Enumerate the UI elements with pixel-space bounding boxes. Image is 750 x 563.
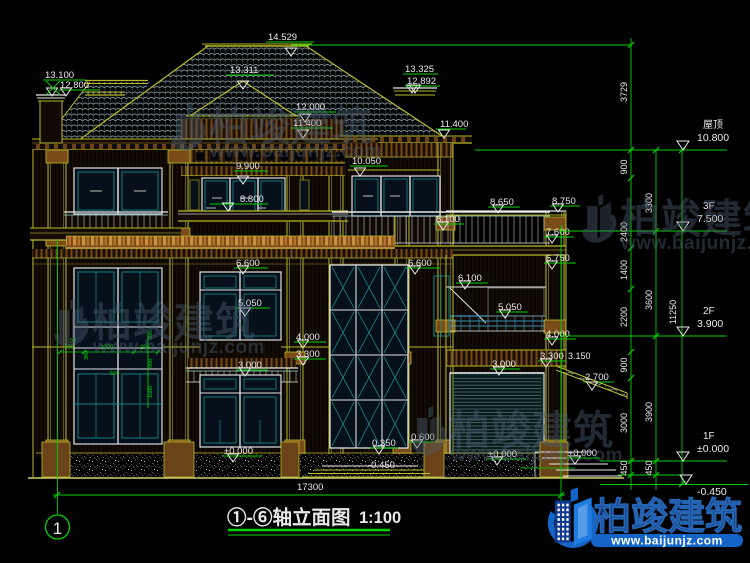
svg-text:1:100: 1:100 bbox=[359, 509, 401, 527]
svg-text:3000: 3000 bbox=[619, 413, 629, 433]
svg-text:2F: 2F bbox=[703, 306, 715, 317]
svg-text:12.800: 12.800 bbox=[60, 80, 89, 91]
svg-text:①-⑥轴立面图: ①-⑥轴立面图 bbox=[227, 506, 351, 529]
svg-text:3.300: 3.300 bbox=[540, 351, 564, 362]
svg-text:www.baijunjz.com: www.baijunjz.com bbox=[92, 337, 265, 358]
svg-text:3.150: 3.150 bbox=[568, 351, 591, 361]
svg-text:13.311: 13.311 bbox=[230, 65, 258, 76]
svg-text:6.750: 6.750 bbox=[546, 253, 570, 264]
svg-text:450: 450 bbox=[644, 460, 654, 475]
svg-text:300: 300 bbox=[84, 351, 90, 360]
svg-text:www.baijunjz.com: www.baijunjz.com bbox=[610, 534, 723, 548]
svg-text:3600: 3600 bbox=[644, 290, 654, 310]
svg-text:3.900: 3.900 bbox=[697, 318, 723, 330]
svg-text:500: 500 bbox=[110, 371, 119, 377]
svg-text:-0.450: -0.450 bbox=[368, 460, 395, 471]
svg-text:1400: 1400 bbox=[619, 260, 629, 280]
svg-text:900: 900 bbox=[619, 159, 629, 174]
svg-text:1: 1 bbox=[53, 519, 62, 538]
svg-text:9.900: 9.900 bbox=[236, 161, 260, 172]
svg-text:1500: 1500 bbox=[148, 386, 154, 398]
svg-text:7.600: 7.600 bbox=[546, 227, 570, 238]
svg-text:17300: 17300 bbox=[297, 482, 323, 493]
svg-text:14.529: 14.529 bbox=[268, 32, 297, 43]
svg-text:屋顶: 屋顶 bbox=[703, 119, 723, 131]
svg-text:900: 900 bbox=[619, 357, 629, 372]
svg-text:www.baijunjz.com: www.baijunjz.com bbox=[209, 141, 382, 162]
svg-text:10.800: 10.800 bbox=[697, 132, 729, 144]
svg-text:柏竣建筑: 柏竣建筑 bbox=[594, 495, 742, 537]
svg-text:±0.000: ±0.000 bbox=[697, 443, 729, 455]
svg-text:4.000: 4.000 bbox=[546, 329, 570, 340]
svg-text:1F: 1F bbox=[703, 431, 715, 442]
svg-text:2.700: 2.700 bbox=[585, 372, 609, 383]
svg-text:3729: 3729 bbox=[619, 82, 629, 102]
svg-text:3900: 3900 bbox=[644, 402, 654, 422]
svg-text:8.750: 8.750 bbox=[552, 196, 576, 207]
svg-text:11.400: 11.400 bbox=[440, 119, 468, 130]
svg-text:11250: 11250 bbox=[668, 300, 678, 324]
svg-text:2200: 2200 bbox=[619, 307, 629, 327]
svg-text:www.baijunjz.com: www.baijunjz.com bbox=[450, 445, 623, 466]
svg-text:8.800: 8.800 bbox=[240, 194, 264, 205]
svg-text:900: 900 bbox=[148, 359, 154, 368]
svg-text:13.325: 13.325 bbox=[405, 64, 434, 75]
svg-text:www.baijunjz.com: www.baijunjz.com bbox=[620, 233, 750, 254]
